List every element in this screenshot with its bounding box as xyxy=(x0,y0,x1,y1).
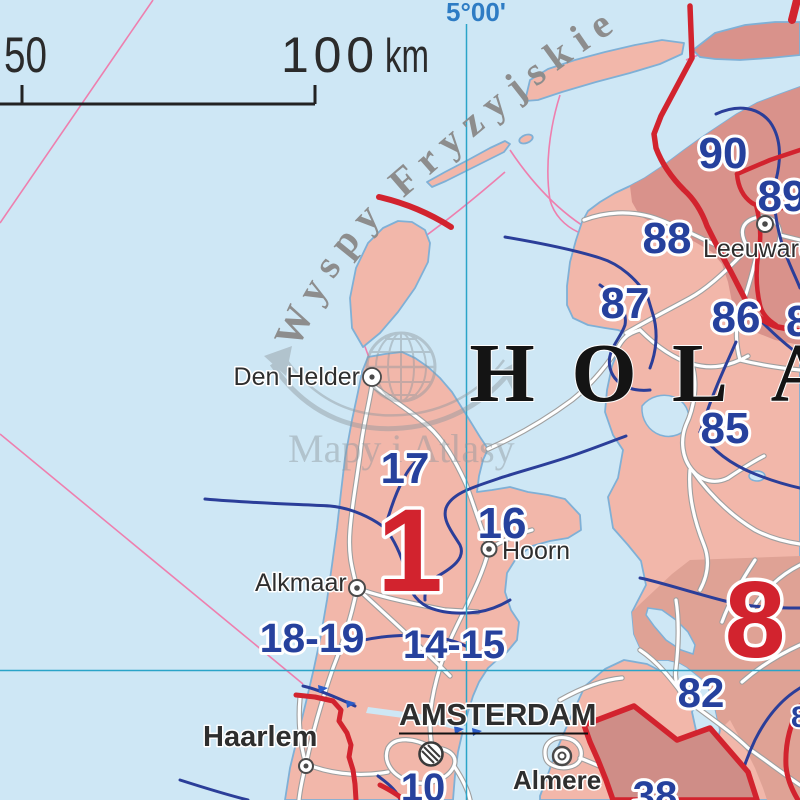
svg-text:50: 50 xyxy=(4,27,47,83)
svg-text:83: 83 xyxy=(791,701,800,734)
svg-text:Hoorn: Hoorn xyxy=(502,537,570,565)
svg-text:1: 1 xyxy=(377,485,443,617)
svg-text:86: 86 xyxy=(712,293,761,342)
svg-text:Almere: Almere xyxy=(513,765,601,795)
svg-text:84: 84 xyxy=(786,297,800,346)
svg-text:85: 85 xyxy=(701,404,750,453)
svg-text:km: km xyxy=(385,29,429,82)
svg-text:Haarlem: Haarlem xyxy=(203,721,317,753)
svg-text:Den Helder: Den Helder xyxy=(234,363,360,391)
svg-text:Alkmaar: Alkmaar xyxy=(255,569,347,597)
svg-text:82: 82 xyxy=(678,669,725,716)
svg-text:38: 38 xyxy=(633,774,678,800)
svg-text:8: 8 xyxy=(725,559,786,681)
svg-text:AMSTERDAM: AMSTERDAM xyxy=(399,697,596,732)
svg-text:88: 88 xyxy=(643,214,692,263)
svg-text:87: 87 xyxy=(601,279,650,328)
svg-text:10: 10 xyxy=(401,766,446,800)
svg-text:18-19: 18-19 xyxy=(260,615,365,661)
svg-text:H: H xyxy=(469,327,534,420)
svg-text:O: O xyxy=(571,327,636,420)
svg-text:100: 100 xyxy=(281,27,374,83)
svg-text:14-15: 14-15 xyxy=(403,623,505,667)
svg-text:89: 89 xyxy=(758,172,800,221)
svg-text:90: 90 xyxy=(699,129,748,178)
svg-text:5°00': 5°00' xyxy=(446,0,506,27)
svg-text:Leeuwarden: Leeuwarden xyxy=(703,235,800,263)
